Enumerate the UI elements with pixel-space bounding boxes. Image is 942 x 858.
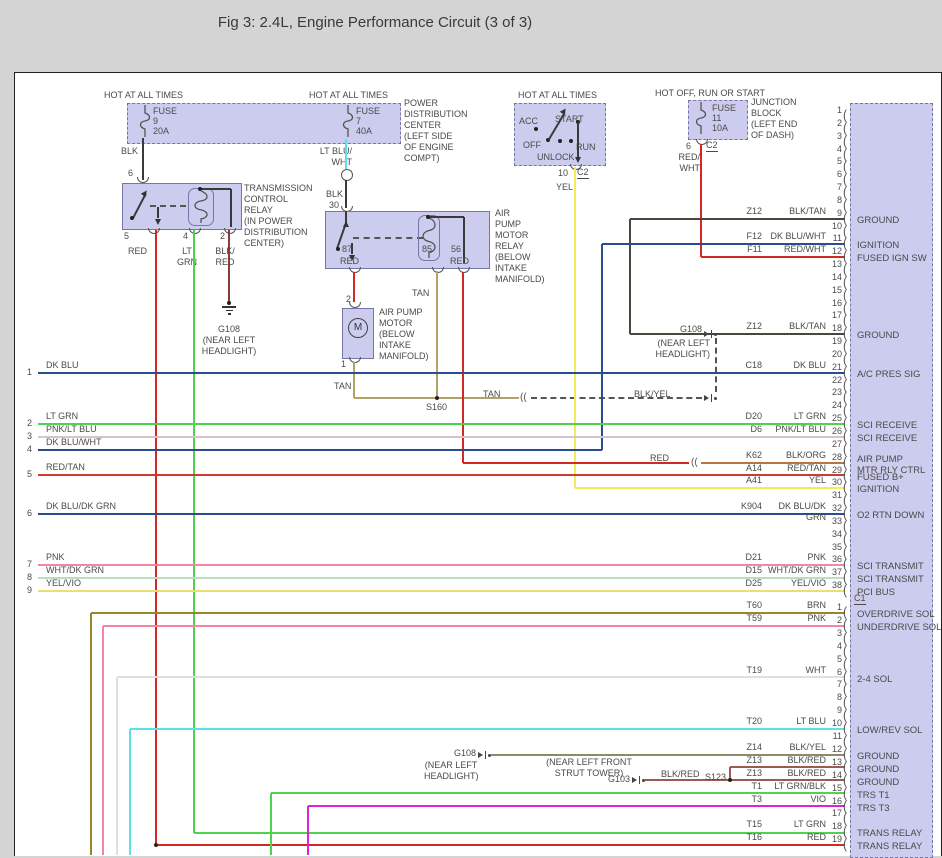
fuse-7-icon: [342, 105, 354, 137]
label-off: OFF: [523, 140, 541, 151]
label-g108-mid: G108: [676, 324, 702, 335]
label-hot-off-run-start: HOT OFF, RUN OR START: [655, 88, 765, 99]
wire-color-label: VIO: [764, 794, 826, 805]
label-air-pump-motor-relay: AIR PUMP MOTOR RELAY (BELOW INTAKE MANIF…: [495, 208, 545, 285]
wire-lt-grn-row2: [38, 423, 845, 425]
wire-dk-blu-dk-grn-row6: [38, 513, 845, 515]
label-acc: ACC: [519, 116, 538, 127]
label-tan-motor: TAN: [334, 381, 351, 392]
label-tan-s160: TAN: [483, 389, 500, 400]
pin-function-label: O2 RTN DOWN: [857, 510, 924, 521]
label-blk-red: BLK/ RED: [212, 246, 238, 268]
circuit-code: F11: [728, 244, 762, 255]
pin-number: 24: [818, 400, 842, 411]
wire-yel-vio-row9: [38, 590, 845, 592]
pin-number: 8: [818, 692, 842, 703]
wire-wht-t19: [117, 676, 845, 678]
label-fuse-9: FUSE 9 20A: [153, 106, 177, 136]
pin-number: 6: [818, 169, 842, 180]
coil-junction-dot: [426, 215, 430, 219]
wire-brn-vert: [90, 613, 92, 855]
pin-function-label: SCI RECEIVE: [857, 420, 917, 431]
wire-blk-yel-dashed: [531, 397, 702, 399]
row-num-3: 3: [18, 431, 32, 442]
label-hot-at-all-times-2: HOT AT ALL TIMES: [309, 90, 388, 101]
label-power-distribution-center: POWER DISTRIBUTION CENTER (LEFT SIDE OF …: [404, 98, 468, 164]
label-c2-jb: C2: [706, 140, 718, 152]
row-num-1: 1: [18, 367, 32, 378]
inline-connector-icon: ((: [520, 392, 527, 403]
wire-pnk-t59: [103, 625, 845, 627]
circuit-code: Z13: [728, 768, 762, 779]
wire-blk-red-tcr2: [228, 230, 230, 302]
wire-yel-a41: [575, 487, 845, 489]
wire-blk-apr: [345, 180, 347, 208]
pin-10-ign: 10: [558, 168, 568, 179]
label-g108-bottom: G108: [450, 748, 476, 759]
label-hot-at-all-times-1: HOT AT ALL TIMES: [104, 90, 183, 101]
pin-number: 19: [818, 336, 842, 347]
pin-function-label: SCI TRANSMIT: [857, 574, 924, 585]
pin-number: 5: [818, 654, 842, 665]
relay2-link-dashed: [353, 237, 423, 239]
ground-icon-g108: [222, 303, 236, 317]
coil-right-wire: [230, 189, 232, 227]
pin-function-label: GROUND: [857, 330, 899, 341]
circuit-code: T20: [728, 716, 762, 727]
circuit-code: Z13: [728, 755, 762, 766]
pin-function-label: SCI RECEIVE: [857, 433, 917, 444]
wire-dk-blu-wht-row4: [38, 449, 602, 451]
switch-pos-dot: [569, 139, 573, 143]
pin-87-apr: 87: [342, 244, 352, 255]
wire-color-label: BRN: [764, 600, 826, 611]
wire-color-label: RED/TAN: [764, 463, 826, 474]
pin-number: 8: [818, 195, 842, 206]
wire-color-label: PNK/LT BLU: [764, 424, 826, 435]
pin-number: 4: [818, 641, 842, 652]
pin-number: 9: [818, 705, 842, 716]
wire-lt-blu-t20: [130, 728, 845, 730]
wire-color-label: BLK/RED: [764, 768, 826, 779]
pin-number: 22: [818, 375, 842, 386]
row-num-2: 2: [18, 418, 32, 429]
label-red-56: RED: [450, 256, 469, 267]
circuit-code: D21: [728, 552, 762, 563]
circuit-code: T60: [728, 600, 762, 611]
wire-lt-blu-vert: [129, 729, 131, 855]
pin-number: 7: [818, 679, 842, 690]
pin-function-label: TRS T3: [857, 803, 890, 814]
wire-color-label: DK BLU/WHT: [764, 231, 826, 242]
wire-red-wht-vert: [700, 144, 702, 257]
wire-color-label: RED: [764, 832, 826, 843]
relay-contact-line: [157, 207, 159, 218]
pin-number: 23: [818, 387, 842, 398]
switch-pos-dot: [534, 127, 538, 131]
pin-function-label: A/C PRES SIG: [857, 369, 920, 380]
pin-number: 35: [818, 542, 842, 553]
label-wht-dk-grn: WHT/DK GRN: [46, 565, 104, 576]
wire-lt-grn-tcr4: [193, 230, 195, 833]
label-g103: G103: [604, 774, 630, 785]
row-num-9: 9: [18, 585, 32, 596]
ground-connector-icon: [704, 394, 718, 403]
label-yel: YEL: [556, 182, 573, 193]
wire-blk-tan-z12b: [630, 333, 845, 335]
row-num-4: 4: [18, 444, 32, 455]
pin-85-apr: 85: [422, 244, 432, 255]
label-lt-grn-row2: LT GRN: [46, 411, 78, 422]
pin-number: 20: [818, 349, 842, 360]
relay-pivot-dot: [130, 216, 134, 220]
label-pnk-lt-blu: PNK/LT BLU: [46, 424, 97, 435]
pin-number: 27: [818, 439, 842, 450]
label-s160: S160: [426, 402, 447, 413]
circuit-code: D15: [728, 565, 762, 576]
circuit-code: T15: [728, 819, 762, 830]
label-red-87: RED: [340, 256, 359, 267]
pin-function-label: OVERDRIVE SOL: [857, 609, 935, 620]
coil-top-wire: [200, 188, 231, 190]
pin-number: 2: [818, 118, 842, 129]
circuit-code: D6: [728, 424, 762, 435]
wire-color-label: LT GRN: [764, 819, 826, 830]
arrow-icon: [343, 221, 349, 227]
pin-function-label: TRANS RELAY: [857, 828, 922, 839]
switch-pos-dot: [558, 139, 562, 143]
wire-vio-t3: [308, 805, 845, 807]
label-dk-blu-wht: DK BLU/WHT: [46, 437, 102, 448]
wire-color-label: BLK/YEL: [764, 742, 826, 753]
pin-4-tcr: 4: [183, 231, 188, 242]
pin-function-label: LOW/REV SOL: [857, 725, 922, 736]
wire-pnk-lt-blu-row3: [38, 436, 845, 438]
wire-tan-motor: [353, 362, 355, 398]
circuit-code: F12: [728, 231, 762, 242]
pin-number: 15: [818, 285, 842, 296]
row-num-6: 6: [18, 508, 32, 519]
pin-function-label: IGNITION: [857, 240, 899, 251]
wire-red-t16: [156, 844, 845, 846]
arrow-icon: [155, 219, 161, 225]
wire-color-label: YEL: [764, 475, 826, 486]
wire-color-label: BLK/RED: [764, 755, 826, 766]
label-pnk: PNK: [46, 552, 65, 563]
fuse-9-icon: [139, 105, 151, 137]
label-blk: BLK: [121, 146, 138, 157]
pin-number: 7: [818, 182, 842, 193]
label-red-wht: RED/ WHT: [674, 152, 700, 174]
motor-icon: M: [348, 318, 368, 338]
wire-red-tcr5: [155, 230, 157, 845]
wire-wht-vert: [116, 677, 118, 855]
pin-function-label: 2-4 SOL: [857, 674, 892, 685]
fuse-11-icon: [695, 102, 707, 134]
circuit-code: Z12: [728, 321, 762, 332]
label-fuse-7: FUSE 7 40A: [356, 106, 380, 136]
row-num-7: 7: [18, 559, 32, 570]
pin-number: 10: [818, 221, 842, 232]
ignition-run-line: [577, 122, 579, 157]
wire-color-label: BLK/TAN: [764, 206, 826, 217]
wire-yel-vert: [574, 167, 576, 488]
label-c2-ign: C2: [577, 167, 589, 179]
splice-dot: [154, 843, 158, 847]
pin-number: 3: [818, 131, 842, 142]
pin-number: 4: [818, 144, 842, 155]
circuit-code: A14: [728, 463, 762, 474]
label-dk-blu: DK BLU: [46, 360, 79, 371]
wire-blk-fuse9: [142, 138, 144, 180]
wire-dk-blu-wht-vert: [601, 244, 603, 450]
wire-wht-dk-grn-row8: [38, 577, 845, 579]
wire-blk-tan-vert: [629, 219, 631, 334]
row-num-5: 5: [18, 469, 32, 480]
pin-arc: (: [843, 836, 847, 852]
pin-6-tcr: 6: [128, 168, 133, 179]
pin-number: 17: [818, 310, 842, 321]
wire-tan-85: [436, 271, 438, 398]
label-red-tan: RED/TAN: [46, 462, 85, 473]
inline-connector-icon: ((: [691, 457, 698, 468]
splice-s160-dot: [435, 396, 439, 400]
label-g108-left: G108 (NEAR LEFT HEADLIGHT): [194, 324, 264, 357]
circuit-code: K62: [728, 450, 762, 461]
circuit-code: T19: [728, 665, 762, 676]
label-dk-blu-dk-grn: DK BLU/DK GRN: [46, 501, 116, 512]
wire-color-label: PNK: [764, 613, 826, 624]
wire-color-label: WHT/DK GRN: [764, 565, 826, 576]
pin-number: 13: [818, 259, 842, 270]
circuit-code: Z12: [728, 206, 762, 217]
circuit-code: A41: [728, 475, 762, 486]
pin-number: 33: [818, 516, 842, 527]
pin-number: 34: [818, 529, 842, 540]
pin-function-label: SCI TRANSMIT: [857, 561, 924, 572]
pin-function-label: GROUND: [857, 764, 899, 775]
pin-function-label: FUSED IGN SW: [857, 253, 927, 264]
circuit-code: T3: [728, 794, 762, 805]
circuit-code: D25: [728, 578, 762, 589]
circuit-code: C18: [728, 360, 762, 371]
pin-2-tcr: 2: [220, 231, 225, 242]
pin-function-label: FUSED B+: [857, 472, 904, 483]
pin-function-label: GROUND: [857, 777, 899, 788]
label-tan-85: TAN: [412, 288, 429, 299]
arrow-icon: [575, 157, 581, 163]
wire-pnk-row7: [38, 564, 845, 566]
label-red: RED: [128, 246, 147, 257]
wire-color-label: LT BLU: [764, 716, 826, 727]
pin-number: 1: [818, 105, 842, 116]
wire-color-label: BLK/TAN: [764, 321, 826, 332]
wire-color-label: LT GRN/BLK: [764, 781, 826, 792]
circuit-code: T16: [728, 832, 762, 843]
wire-vio-vert: [307, 806, 309, 855]
pin-number: 16: [818, 298, 842, 309]
figure-title: Fig 3: 2.4L, Engine Performance Circuit …: [14, 14, 736, 31]
wire-color-label: LT GRN: [764, 411, 826, 422]
label-junction-block: JUNCTION BLOCK (LEFT END OF DASH): [751, 97, 797, 141]
relay-link-dashed: [150, 205, 186, 207]
pin-function-label: GROUND: [857, 751, 899, 762]
label-unlock: UNLOCK: [537, 152, 575, 163]
label-blk-yel: BLK/YEL: [634, 389, 671, 400]
label-blk-2: BLK: [326, 189, 343, 200]
pin-function-label: TRS T1: [857, 790, 890, 801]
wire-red-56-vert: [462, 272, 464, 463]
pin-number: 17: [818, 808, 842, 819]
wire-red-87: [353, 272, 355, 302]
wire-color-label: DK BLU: [764, 360, 826, 371]
wire-color-label: PNK: [764, 552, 826, 563]
wire-color-label: DK BLU/DK GRN: [764, 501, 826, 523]
circuit-code: K904: [728, 501, 762, 512]
pin-function-label: IGNITION: [857, 484, 899, 495]
wire-pnk-vert: [102, 626, 104, 855]
pin-number: 31: [818, 490, 842, 501]
label-blk-red-g103: BLK/RED: [661, 769, 700, 780]
wire-color-label: WHT: [764, 665, 826, 676]
pin-5-tcr: 5: [124, 231, 129, 242]
wire-blk-tan-z12a: [630, 218, 845, 220]
pin-function-label: GROUND: [857, 215, 899, 226]
pin-function-label: UNDERDRIVE SOL: [857, 622, 941, 633]
label-hot-at-all-times-3: HOT AT ALL TIMES: [518, 90, 597, 101]
wire-dk-blu-row1: [38, 372, 845, 374]
wire-color-label: YEL/VIO: [764, 578, 826, 589]
pin-arc: (: [843, 582, 847, 598]
wire-color-label: RED/WHT: [764, 244, 826, 255]
pin-number: 5: [818, 156, 842, 167]
pin-6-jb: 6: [686, 141, 691, 152]
relay-coil-icon: [188, 188, 214, 226]
coil-junction-dot: [198, 187, 202, 191]
pin-number: 14: [818, 272, 842, 283]
label-yel-vio: YEL/VIO: [46, 578, 81, 589]
relay2-pivot-dot: [336, 247, 340, 251]
label-fuse-11: FUSE 11 10A: [712, 103, 736, 133]
label-g108-mid-loc: (NEAR LEFT HEADLIGHT): [648, 338, 710, 360]
wiring-diagram: Fig 3: 2.4L, Engine Performance Circuit …: [0, 0, 942, 856]
ground-connector-icon: [478, 751, 492, 760]
wire-red-tan-row5: [38, 474, 845, 476]
label-g108-bottom-loc: (NEAR LEFT HEADLIGHT): [424, 760, 478, 782]
circuit-code: T1: [728, 781, 762, 792]
ground-link-dashed: [715, 338, 717, 392]
pin-function-label: TRANS RELAY: [857, 841, 922, 852]
label-air-pump-motor: AIR PUMP MOTOR (BELOW INTAKE MANIFOLD): [379, 307, 429, 362]
pin-56-apr: 56: [451, 244, 461, 255]
label-transmission-control-relay: TRANSMISSION CONTROL RELAY (IN POWER DIS…: [244, 183, 313, 249]
ground-connector-icon: [632, 776, 646, 785]
pin-function-label: PCI BUS: [857, 587, 895, 598]
label-s123: S123: [700, 772, 726, 783]
pin-30-apr: 30: [329, 200, 339, 211]
row-num-8: 8: [18, 572, 32, 583]
circuit-code: D20: [728, 411, 762, 422]
label-red-k62: RED: [645, 453, 669, 464]
circuit-code: T59: [728, 613, 762, 624]
wire-lt-grn-blk-vert: [270, 793, 272, 855]
circuit-code: Z14: [728, 742, 762, 753]
wire-lt-blu-wht: [345, 139, 347, 169]
pin-number: 11: [818, 731, 842, 742]
pin-number: 3: [818, 628, 842, 639]
pin-1-motor: 1: [341, 359, 346, 370]
wire-color-label: BLK/ORG: [764, 450, 826, 461]
relay2-coil-top-wire: [428, 216, 464, 218]
